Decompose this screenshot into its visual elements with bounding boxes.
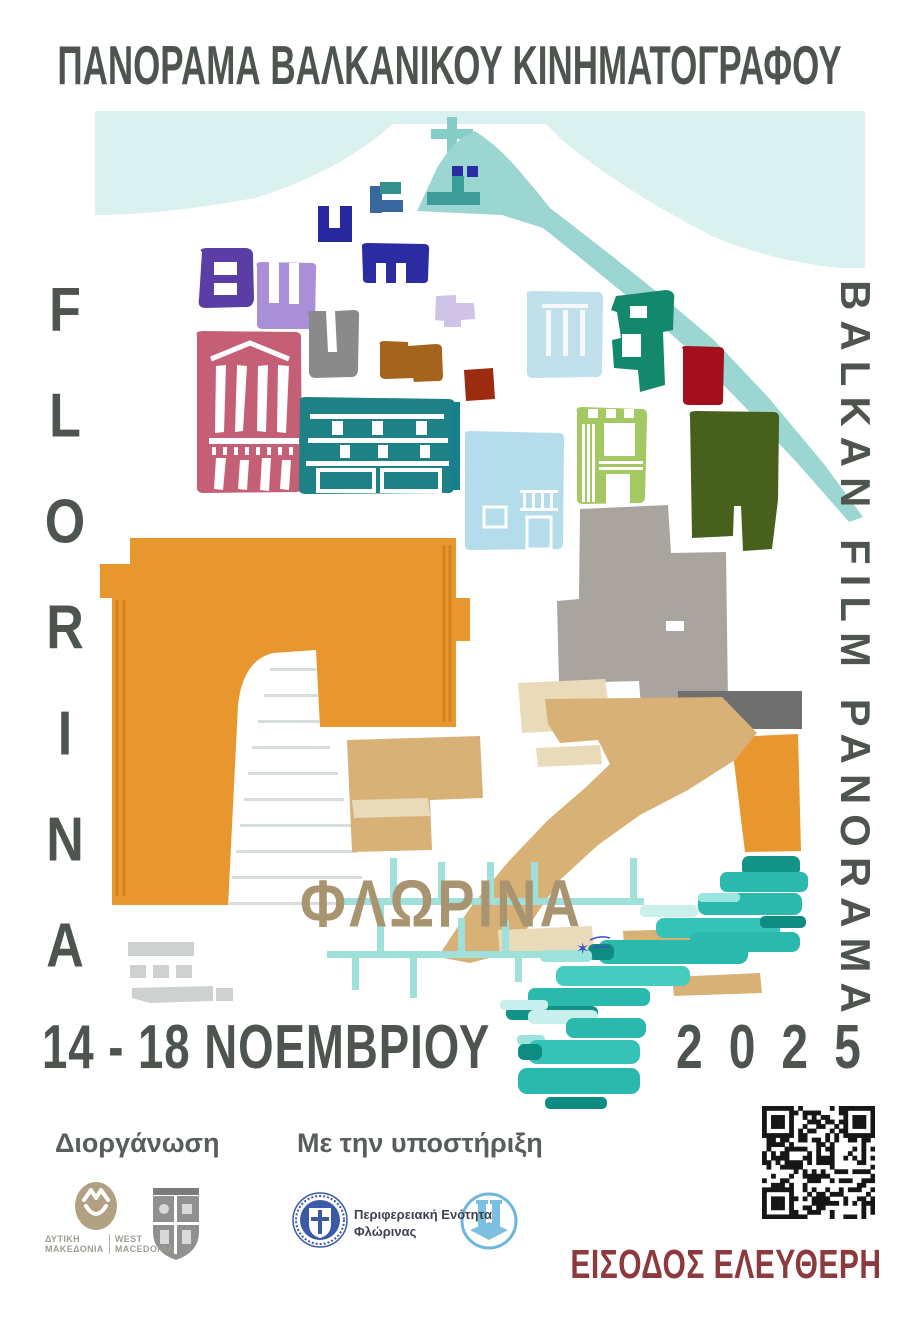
festival-year: 2025 — [676, 1012, 887, 1084]
festival-poster: ✶ — [0, 0, 899, 1320]
city-name-greek: ΦΛΩΡΙΝΑ — [300, 864, 583, 942]
wm-english-line2: MACEDONIA — [115, 1244, 174, 1254]
florina-letter: O — [45, 491, 85, 553]
building-footprint-marks — [128, 942, 233, 1003]
west-macedonia-label: ΔΥΤΙΚΗ ΜΑΚΕΔΟΝΙΑ WEST MACEDONIA — [40, 1234, 179, 1254]
florina-letter: N — [46, 809, 84, 871]
qr-code — [762, 1106, 875, 1219]
qr-code-image — [762, 1106, 875, 1219]
west-macedonia-emblem-icon — [75, 1182, 117, 1230]
svg-text:✶: ✶ — [576, 941, 589, 958]
west-macedonia-label-greek: ΔΥΤΙΚΗ ΜΑΚΕΔΟΝΙΑ — [40, 1234, 109, 1254]
support-org-line1: Περιφερειακή Ενότητα — [354, 1206, 492, 1223]
free-entry-text: ΕΙΣΟΔΟΣ ΕΛΕΥΘΕΡΗ — [566, 1243, 886, 1289]
wm-greek-line1: ΔΥΤΙΚΗ — [45, 1234, 104, 1244]
support-org-label: Περιφερειακή Ενότητα Φλώρινας — [354, 1206, 492, 1240]
date-range: 14 - 18 ΝΟΕΜΒΡΙΟΥ — [42, 1012, 490, 1084]
florina-letter: I — [58, 703, 72, 765]
florina-letter: F — [49, 279, 81, 341]
hellenic-republic-emblem-icon — [293, 1193, 347, 1247]
west-macedonia-label-english: WEST MACEDONIA — [109, 1234, 179, 1254]
wm-greek-line2: ΜΑΚΕΔΟΝΙΑ — [45, 1244, 104, 1254]
balkan-vertical-text: BALKAN FILM PANORAMA — [831, 280, 879, 1080]
support-heading: Με την υποστήριξη — [297, 1128, 543, 1159]
florina-letter: R — [46, 597, 84, 659]
organizer-heading: Διοργάνωση — [55, 1128, 220, 1159]
wm-english-line1: WEST — [115, 1234, 174, 1244]
top-title: ΠΑΝΟΡΑΜΑ ΒΑΛΚΑΝΙΚΟΥ ΚΙΝΗΜΑΤΟΓΡΑΦΟΥ — [36, 36, 863, 98]
florina-letter: A — [46, 915, 84, 977]
florina-vertical-text: F L O R I N A — [28, 284, 102, 972]
florina-letter: L — [49, 385, 81, 447]
rooftop-marks — [318, 166, 480, 242]
support-org-line2: Φλώρινας — [354, 1223, 492, 1240]
